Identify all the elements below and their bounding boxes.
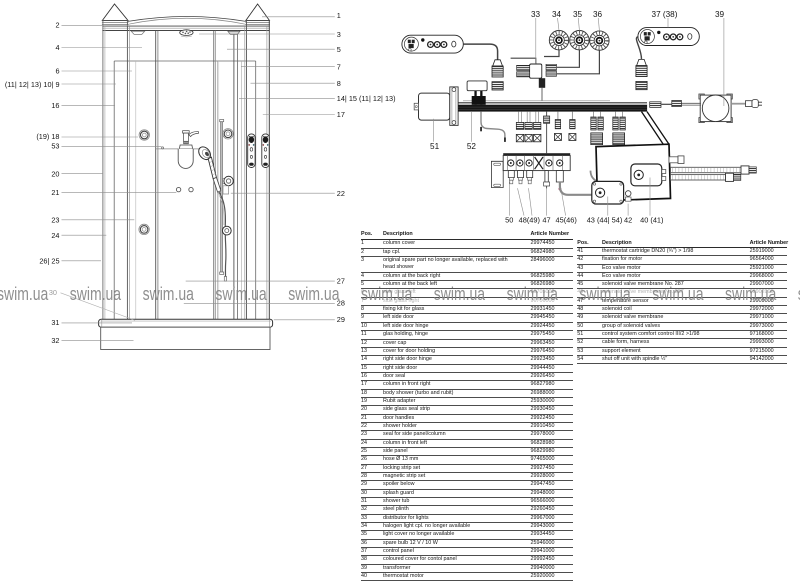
svg-text:swim.ua: swim.ua xyxy=(0,283,49,304)
svg-text:swim.ua: swim.ua xyxy=(579,283,631,304)
svg-text:swim.ua: swim.ua xyxy=(361,283,413,304)
svg-text:swim.ua: swim.ua xyxy=(725,283,777,304)
svg-text:swim.ua: swim.ua xyxy=(143,283,195,304)
svg-text:swim.ua: swim.ua xyxy=(434,283,486,304)
svg-text:swim.ua: swim.ua xyxy=(288,283,340,304)
svg-text:swim.ua: swim.ua xyxy=(215,283,267,304)
svg-text:swim.ua: swim.ua xyxy=(507,283,559,304)
svg-text:swim.ua: swim.ua xyxy=(70,283,122,304)
svg-text:swim.ua: swim.ua xyxy=(652,283,704,304)
